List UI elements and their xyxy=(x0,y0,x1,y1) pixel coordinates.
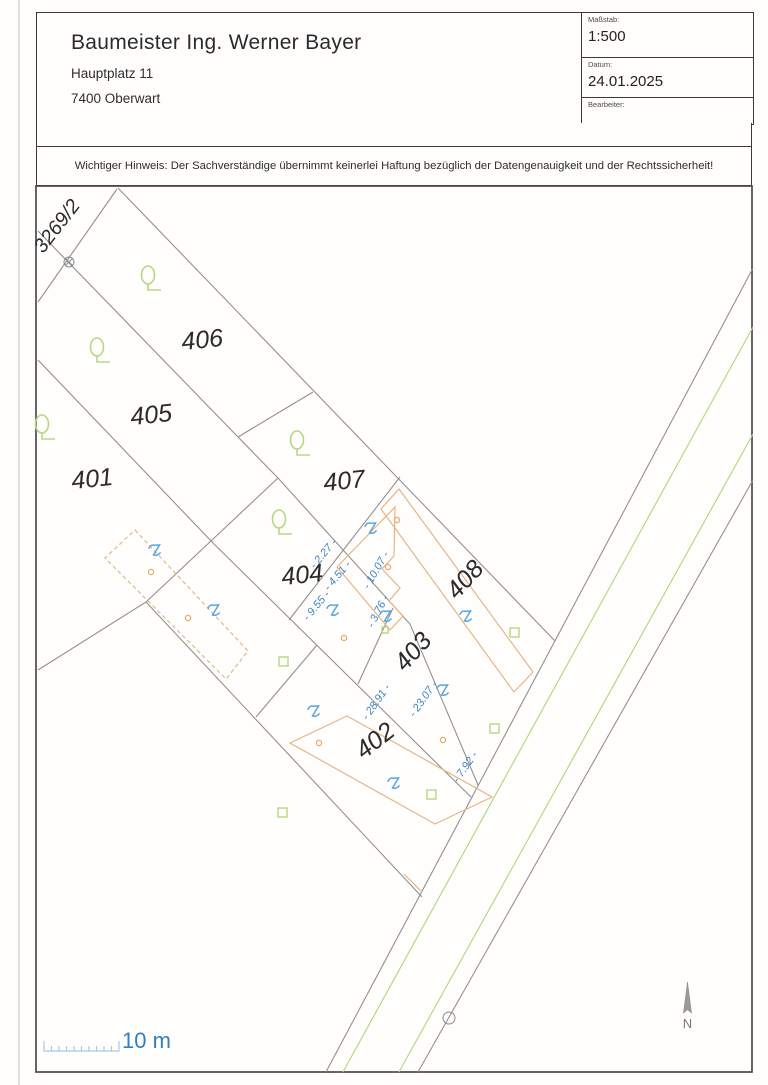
parcel-label-401: 401 xyxy=(70,463,114,495)
scale-ruler-icon xyxy=(44,1041,119,1051)
building-dashed-outline xyxy=(105,530,248,679)
site-plan-drawing: 3269/2 406 405 401 407 404 408 403 402 -… xyxy=(0,0,768,1085)
parcel-label-403: 403 xyxy=(389,627,438,677)
q-symbol xyxy=(36,415,56,439)
q-symbol xyxy=(142,266,162,290)
point-markers xyxy=(148,517,445,745)
q-symbol xyxy=(291,431,311,455)
north-arrow: N xyxy=(683,982,692,1031)
parcel-label-3269-2: 3269/2 xyxy=(30,195,85,257)
parcel-label-407: 407 xyxy=(322,465,367,497)
parcel-boundaries xyxy=(38,188,555,897)
north-label: N xyxy=(683,1016,692,1031)
road-green-line-west xyxy=(343,327,753,1072)
q-symbol xyxy=(91,338,111,362)
road-green-line-east xyxy=(399,434,753,1072)
dim-10-07: - 10.07 - xyxy=(361,549,392,591)
scale-bar: 10 m xyxy=(44,1028,171,1053)
parcel-label-402: 402 xyxy=(350,717,400,765)
north-needle-icon xyxy=(684,982,692,1013)
road-lines xyxy=(326,268,753,1072)
parcel-label-406: 406 xyxy=(180,324,225,356)
dim-2-27: - 2.27 - xyxy=(308,537,340,572)
scanned-plan-page: Baumeister Ing. Werner Bayer Hauptplatz … xyxy=(0,0,768,1085)
dim-4-51: - 4.51 - xyxy=(322,559,354,594)
survey-points xyxy=(64,257,455,1024)
building-fragment xyxy=(404,874,422,892)
dim-23-07: - 23.07 - xyxy=(407,679,441,720)
parcel-label-405: 405 xyxy=(129,399,174,431)
q-symbol xyxy=(273,510,293,534)
parcel-label-408: 408 xyxy=(441,555,490,605)
road-edge-west xyxy=(326,268,753,1072)
scale-bar-label: 10 m xyxy=(122,1028,171,1053)
parcel-labels: 3269/2 406 405 401 407 404 408 403 402 xyxy=(30,195,490,764)
